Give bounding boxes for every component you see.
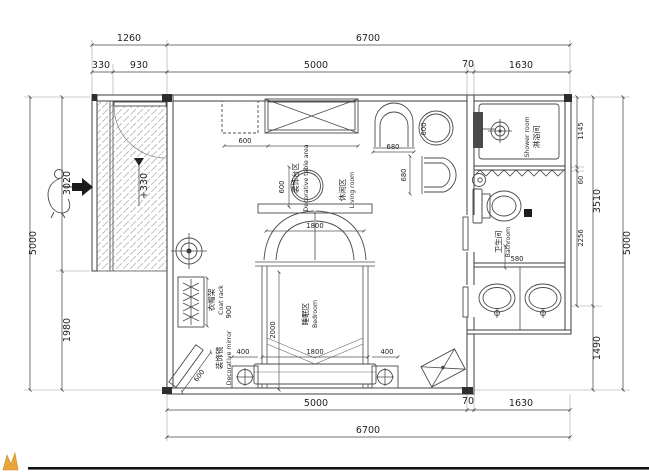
floor-drain-icon xyxy=(524,209,532,217)
dim-330: 330 xyxy=(92,60,110,71)
dim-chair-680: 680 xyxy=(387,143,400,151)
armchair-top xyxy=(375,103,413,147)
duvet-foot xyxy=(254,364,376,384)
label-coat-rack-zh: 衣帽架 xyxy=(206,288,216,311)
dim-70-top: 70 xyxy=(462,59,474,70)
label-shower-zh: 淋浴间 xyxy=(531,126,541,149)
label-bathroom-zh: 卫生间 xyxy=(493,231,503,254)
armchair-set xyxy=(373,103,456,194)
stool-tilted xyxy=(421,349,465,387)
dim-6700-bottom: 6700 xyxy=(356,425,380,436)
dim-1145: 1145 xyxy=(577,122,585,139)
label-bedroom-en: Bedroom xyxy=(312,300,319,328)
page-bottom-bar xyxy=(3,453,649,470)
pillow-right xyxy=(316,211,366,260)
label-bedroom-zh: 睡眠区 xyxy=(301,302,310,325)
dim-vanity-580: 580 xyxy=(511,255,524,263)
shower-room xyxy=(473,104,564,176)
dimensions-right: 1145 60 2256 3510 1490 5000 xyxy=(577,97,633,390)
dim-chair2-680: 680 xyxy=(400,169,408,182)
entry-arrow-icon xyxy=(72,178,93,196)
sink-right xyxy=(525,284,561,312)
dim-60: 60 xyxy=(577,176,585,185)
floor-plan-canvas: +330 xyxy=(0,0,649,473)
toilet xyxy=(473,174,522,224)
label-bathroom-en: Bathroom xyxy=(505,227,512,257)
sink-left xyxy=(479,284,515,312)
label-coat-rack-en: Coat rack xyxy=(218,285,225,315)
dim-nightstand-400-r: 400 xyxy=(381,348,394,356)
yellow-mark-icon xyxy=(3,453,18,470)
dim-5000-right: 5000 xyxy=(622,231,633,255)
pillow-left xyxy=(264,211,314,260)
dim-1630-bottom: 1630 xyxy=(509,398,533,409)
dim-5000-left: 5000 xyxy=(28,231,39,255)
dim-1980: 1980 xyxy=(62,318,73,342)
sliding-door-panel xyxy=(463,217,468,250)
label-decorative-table-zh: 装饰台区 xyxy=(290,163,300,193)
dim-table-600: 600 xyxy=(278,181,286,194)
dim-bedhead-1800: 1800 xyxy=(306,222,323,230)
sliding-door-panel-2 xyxy=(463,287,468,317)
dim-cabinet-600: 600 xyxy=(239,137,252,145)
coat-rack xyxy=(178,277,204,327)
bed xyxy=(254,204,376,388)
dim-930: 930 xyxy=(130,60,148,71)
entry-door-leaf xyxy=(114,102,166,106)
dim-5000-bottom: 5000 xyxy=(304,398,328,409)
dim-3020: 3020 xyxy=(62,171,73,195)
ceiling-target-symbol xyxy=(171,233,207,269)
dim-1260: 1260 xyxy=(117,33,141,44)
dimensions-left: 5000 3020 1980 xyxy=(28,97,73,390)
dim-bed-2000: 2000 xyxy=(269,321,277,338)
dimensions-bottom: 5000 70 1630 6700 xyxy=(167,396,570,437)
label-living-zh: 休闲区 xyxy=(337,178,347,201)
vanity xyxy=(474,267,565,330)
dim-1630-top: 1630 xyxy=(509,60,533,71)
dim-70-bottom: 70 xyxy=(462,396,474,407)
label-shower-en: Shower room xyxy=(524,116,531,157)
dim-1490: 1490 xyxy=(592,336,603,360)
decorative-table-cabinet xyxy=(222,99,358,133)
dim-sidetable-600: 600 xyxy=(420,123,428,136)
shower-door xyxy=(473,112,483,148)
room-labels: 装饰台区 Decorative table area 休闲区 Living ro… xyxy=(206,116,541,385)
label-living-en: Living room xyxy=(349,172,356,208)
floor-plan-page: +330 xyxy=(0,0,649,473)
bottom-rule xyxy=(28,467,649,470)
dim-bedfoot-1800: 1800 xyxy=(306,348,323,356)
shower-curtain xyxy=(474,170,564,176)
label-mirror-en: Decorative mirror xyxy=(226,330,233,385)
dim-2256: 2256 xyxy=(577,229,585,246)
dim-coatrack-900: 900 xyxy=(225,306,233,319)
entry-level-label: +330 xyxy=(139,173,150,199)
dim-5000-top: 5000 xyxy=(304,60,328,71)
dim-mirror-600: 600 xyxy=(192,368,206,383)
entry-porch xyxy=(92,101,167,271)
dim-6700-top: 6700 xyxy=(356,33,380,44)
dim-nightstand-400-l: 400 xyxy=(237,348,250,356)
label-decorative-table-en: Decorative table area xyxy=(303,144,310,211)
dim-3510: 3510 xyxy=(592,189,603,213)
label-mirror-zh: 装饰镜 xyxy=(214,346,224,369)
dimensions-top: 1260 6700 330 930 5000 70 1630 xyxy=(92,33,570,72)
